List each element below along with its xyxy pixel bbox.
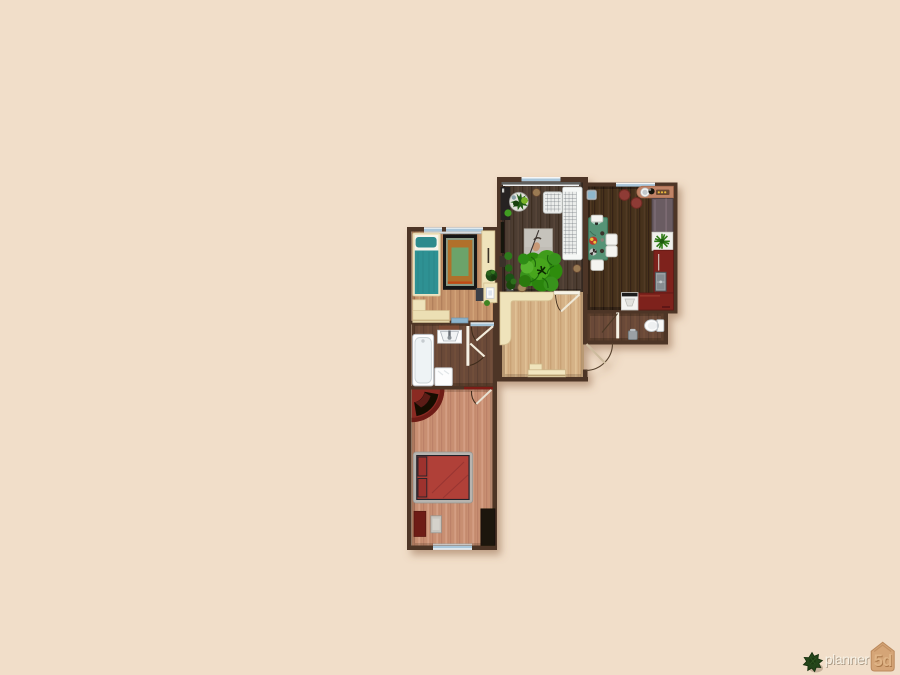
svg-text:5d: 5d — [874, 652, 892, 670]
svg-text:planner: planner — [825, 651, 870, 667]
